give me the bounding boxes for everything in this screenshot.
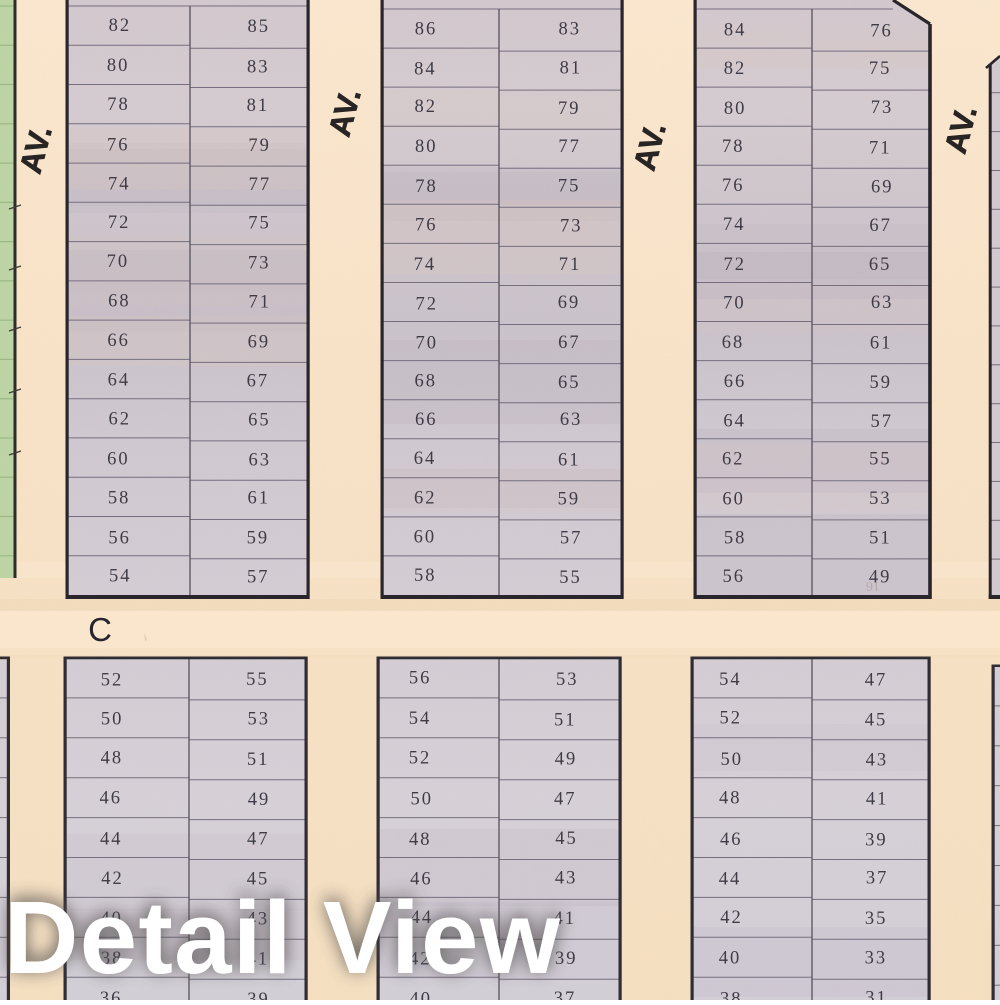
svg-text:Detail View: Detail View	[4, 880, 561, 995]
